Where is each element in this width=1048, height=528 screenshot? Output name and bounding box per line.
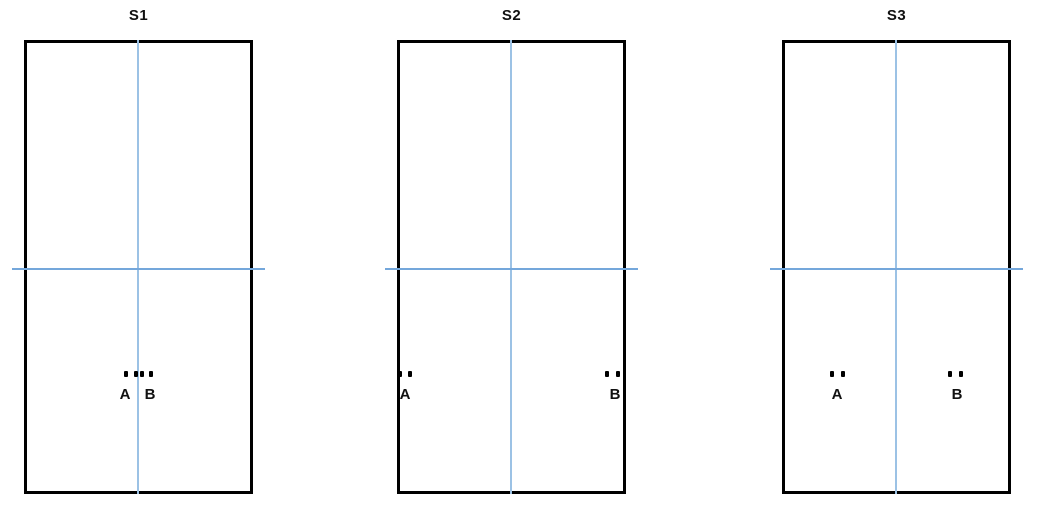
diagram-canvas: S1 A B S2 A B S3 A B [0,0,1048,528]
panel-s2-horizontal-crossline [385,268,638,270]
panel-s1-point-a-label: A [114,386,136,403]
panel-s2-point-b-label: B [604,386,626,403]
panel-s3-point-b-dot [959,371,963,377]
panel-s1-point-a-dot [124,371,128,377]
panel-s2: S2 A B [385,0,639,528]
panel-s2-vertical-centerline [510,40,512,494]
panel-s3: S3 A B [770,0,1024,528]
panel-s1-title: S1 [24,7,253,24]
panel-s3-point-a-dot [841,371,845,377]
panel-s2-point-b-dot [616,371,620,377]
panel-s1-horizontal-crossline [12,268,265,270]
panel-s3-horizontal-crossline [770,268,1023,270]
panel-s3-title: S3 [782,7,1011,24]
panel-s2-point-a-label: A [394,386,416,403]
panel-s1-vertical-centerline [137,40,139,494]
panel-s3-point-b-label: B [946,386,968,403]
panel-s2-title: S2 [397,7,626,24]
panel-s3-point-b-dot [948,371,952,377]
panel-s1-point-b-dot [149,371,153,377]
panel-s2-point-b-dot [605,371,609,377]
panel-s1-point-b-label: B [139,386,161,403]
panel-s3-point-a-label: A [826,386,848,403]
panel-s2-point-a-dot [398,371,402,377]
panel-s3-vertical-centerline [895,40,897,494]
panel-s1-point-a-dot [134,371,138,377]
panel-s1: S1 A B [12,0,266,528]
panel-s2-point-a-dot [408,371,412,377]
panel-s1-point-b-dot [140,371,144,377]
panel-s3-point-a-dot [830,371,834,377]
